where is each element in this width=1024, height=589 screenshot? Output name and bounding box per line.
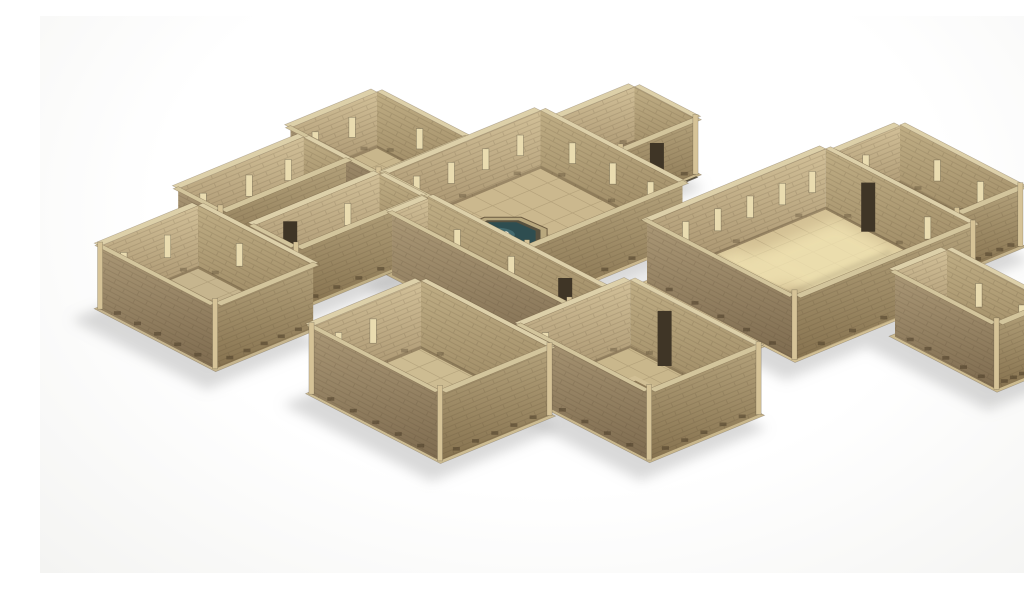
wall-slot [934, 160, 940, 181]
wall-slot [977, 182, 983, 203]
corner-post [98, 242, 103, 309]
wall-slot [809, 171, 815, 192]
wall-slot [370, 319, 376, 343]
wall-slot [164, 235, 170, 258]
wall-slot [715, 209, 721, 231]
corner-post [437, 385, 442, 461]
corner-post [309, 322, 314, 394]
corner-post [756, 342, 761, 415]
corner-post [792, 290, 797, 360]
corner-post [1018, 183, 1023, 247]
wall-slot [779, 183, 785, 205]
wall-slot [349, 117, 355, 137]
wall-slot [747, 196, 753, 218]
wall-slot [448, 162, 454, 183]
wall-slot [236, 244, 242, 267]
dungeon-model-svg [40, 16, 1024, 573]
wall-slot [569, 143, 575, 164]
wall-slot [416, 129, 422, 149]
corner-post [213, 298, 218, 368]
wall-slot [285, 160, 291, 181]
wall-slot [345, 204, 351, 226]
wall-slot [517, 135, 523, 156]
doorway-opening [658, 311, 672, 366]
wall-slot [924, 217, 930, 239]
wall-slot [483, 149, 489, 170]
dungeon-render [40, 16, 1024, 573]
wall-slot [610, 163, 616, 184]
doorway-opening [861, 183, 875, 232]
corner-post [547, 343, 552, 416]
corner-post [647, 385, 652, 460]
wall-slot [976, 284, 982, 308]
wall-slot [246, 175, 252, 196]
corner-post [994, 318, 999, 390]
corner-post [693, 115, 698, 175]
